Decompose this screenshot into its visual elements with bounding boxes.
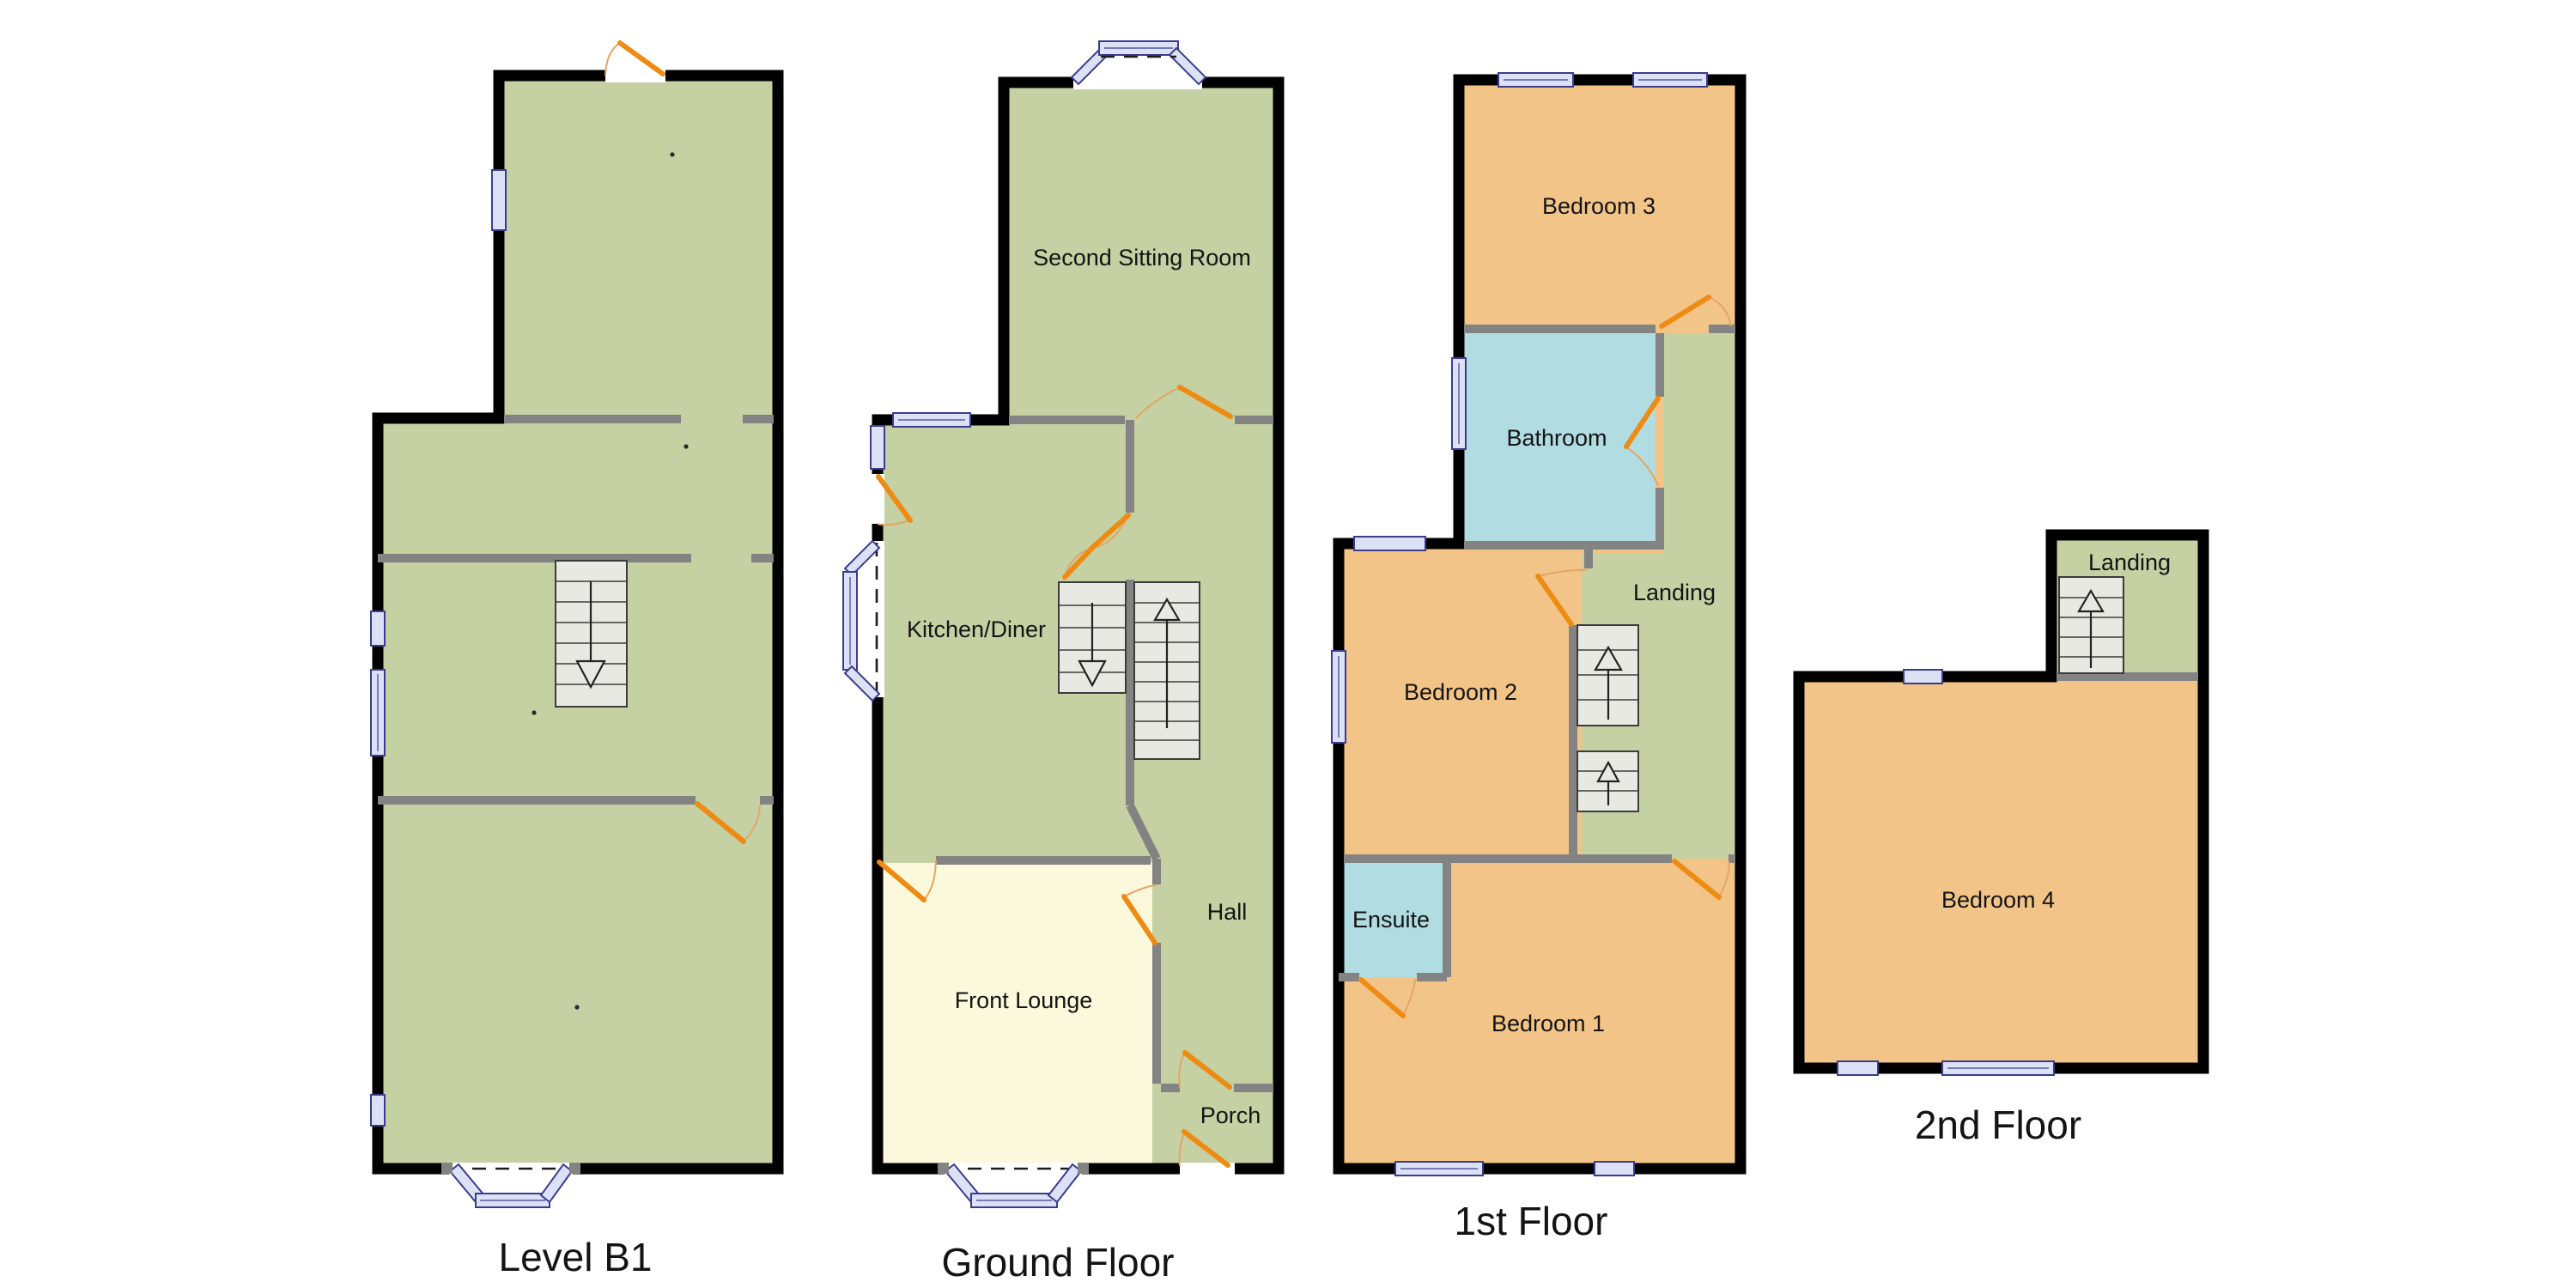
window <box>871 426 884 469</box>
window <box>1354 537 1425 550</box>
front-lounge-fill <box>878 863 1152 1163</box>
floorplan-level-b1: Level B1 <box>371 43 778 1279</box>
floorplan-ground-floor: Second Sitting Room Kitchen/Diner Front … <box>843 41 1279 1285</box>
room-label-landing-first: Landing <box>1633 580 1716 605</box>
room-label-porch: Porch <box>1200 1103 1261 1128</box>
floor-title-ground: Ground Floor <box>941 1240 1174 1285</box>
room-label-hall: Hall <box>1207 899 1248 925</box>
first-stairs-upper <box>1577 625 1638 726</box>
b1-bay-window <box>441 1163 580 1207</box>
b1-top-door <box>605 43 665 82</box>
window <box>1838 1061 1878 1075</box>
kitchen-bay-window <box>843 541 884 701</box>
window <box>1904 670 1942 683</box>
second-stairs <box>2059 577 2123 673</box>
window <box>1595 1162 1634 1176</box>
floorplan-second-floor: Landing Bedroom 4 2nd Floor <box>1799 535 2203 1147</box>
floor-title-level-b1: Level B1 <box>498 1235 652 1279</box>
first-stairs-lower <box>1577 751 1638 811</box>
room-label-ensuite: Ensuite <box>1352 907 1430 933</box>
room-label-kitchen-diner: Kitchen/Diner <box>907 617 1046 642</box>
lounge-bay-window <box>938 1163 1089 1207</box>
room-label-second-sitting-room: Second Sitting Room <box>1033 245 1251 270</box>
window <box>492 170 506 230</box>
door-leaf <box>620 43 663 74</box>
room-label-bedroom-3: Bedroom 3 <box>1542 193 1656 219</box>
b1-stairs <box>556 561 627 707</box>
room-label-landing-second: Landing <box>2088 550 2171 575</box>
floorplan-canvas: Level B1 <box>0 0 2576 1288</box>
ground-stairs-up <box>1134 582 1200 759</box>
floor-title-second: 2nd Floor <box>1915 1103 2081 1147</box>
sitting-room-bay-window <box>1072 41 1206 89</box>
room-label-bedroom-2: Bedroom 2 <box>1404 679 1517 705</box>
floor-title-first: 1st Floor <box>1455 1199 1608 1243</box>
ground-stairs-down <box>1059 582 1126 693</box>
room-label-bedroom-4: Bedroom 4 <box>1941 887 2055 913</box>
floorplan-page: Level B1 <box>0 0 2576 1288</box>
room-label-bathroom: Bathroom <box>1506 425 1607 451</box>
room-label-bedroom-1: Bedroom 1 <box>1492 1011 1605 1036</box>
floorplan-first-floor: Bedroom 3 Bathroom Landing Bedroom 2 Ens… <box>1332 73 1741 1243</box>
window <box>371 1095 385 1126</box>
window <box>371 611 385 646</box>
room-label-front-lounge: Front Lounge <box>955 987 1093 1013</box>
